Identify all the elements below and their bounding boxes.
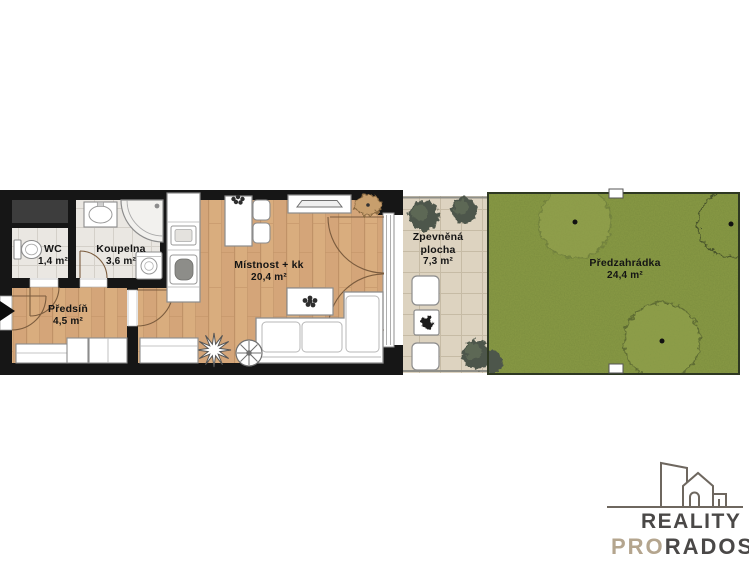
pouf-icon	[355, 195, 381, 215]
garden	[481, 186, 749, 379]
room-area: 1,4 m²	[38, 256, 68, 269]
label-zpevnena-plocha: Zpevněná plocha 7,3 m²	[413, 231, 464, 269]
logo-text-proradost: PRORADOST	[611, 534, 749, 560]
tv-stand	[288, 195, 351, 213]
room-name: Zpevněná	[413, 231, 464, 244]
room-area: 20,4 m²	[234, 272, 303, 285]
label-predsin: Předsíň 4,5 m²	[48, 303, 88, 328]
terrace-table	[414, 310, 439, 335]
logo-text-radost: RADOST	[665, 534, 749, 559]
room-area: 4,5 m²	[48, 316, 88, 329]
round-chair-icon	[236, 340, 262, 366]
terrace-chair-top	[412, 276, 439, 305]
room-name: Předzahrádka	[589, 257, 660, 270]
room-name: WC	[38, 243, 68, 256]
label-predzahradka: Předzahrádka 24,4 m²	[589, 257, 660, 282]
installation-shaft	[12, 200, 68, 228]
coffee-table	[287, 288, 333, 315]
room-name: Koupelna	[96, 243, 145, 256]
room-area: 24,4 m²	[589, 270, 660, 283]
terrace-chair-bottom	[412, 343, 439, 370]
room-area: 3,6 m²	[96, 256, 145, 269]
sideboard	[140, 338, 198, 363]
room-name: plocha	[413, 244, 464, 257]
room-name: Místnost + kk	[234, 259, 303, 272]
room-name: Předsíň	[48, 303, 88, 316]
logo-text-pro: PRO	[611, 534, 665, 559]
logo-buildings-icon	[605, 456, 747, 512]
kitchenette	[167, 193, 200, 302]
terrace-paved-area	[403, 196, 492, 373]
logo-text-reality: REALITY	[641, 510, 741, 534]
french-window	[383, 213, 394, 347]
label-koupelna: Koupelna 3,6 m²	[96, 243, 145, 268]
label-mistnost: Místnost + kk 20,4 m²	[234, 259, 303, 284]
label-wc: WC 1,4 m²	[38, 243, 68, 268]
room-area: 7,3 m²	[413, 256, 464, 269]
bathroom-sink-icon	[84, 202, 117, 227]
